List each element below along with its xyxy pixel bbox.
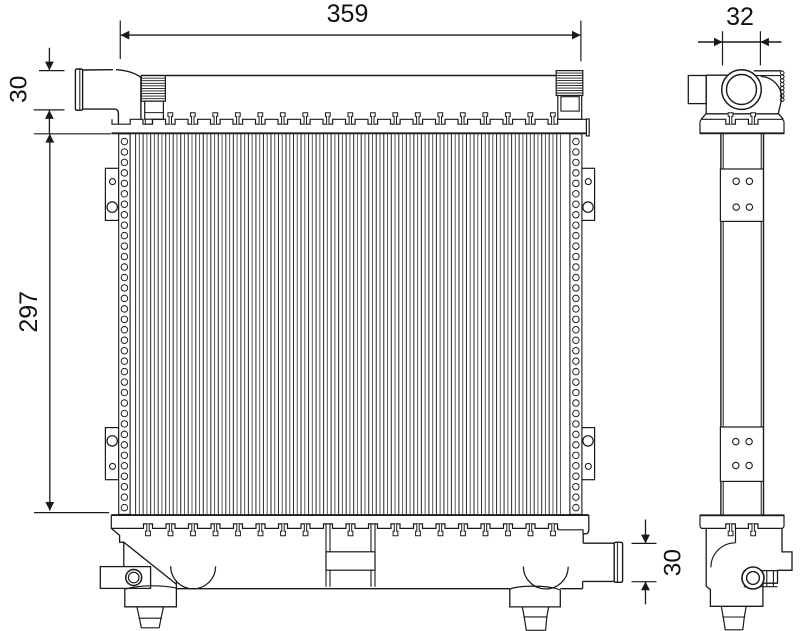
svg-text:30: 30 [6,76,33,103]
svg-text:359: 359 [327,0,369,28]
svg-text:297: 297 [15,291,43,333]
svg-text:30: 30 [659,549,686,576]
svg-text:32: 32 [726,3,754,31]
